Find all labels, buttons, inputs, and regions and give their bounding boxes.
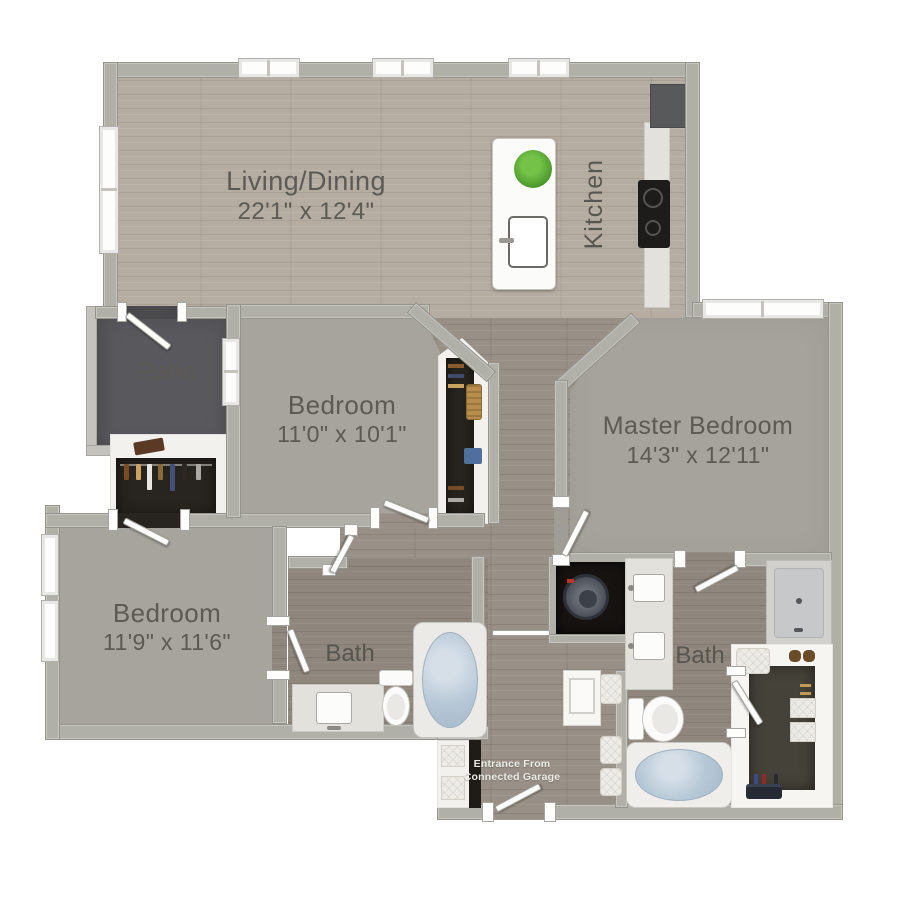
faucet-icon [499, 238, 514, 243]
door-jamb [177, 302, 187, 322]
clothes-icon [448, 498, 464, 502]
bedroom-3-label: Bedroom 11'9" x 11'6" [64, 598, 270, 656]
kitchen-label: Kitchen [572, 142, 616, 266]
burner-icon [643, 188, 663, 208]
storage-basket-icon [600, 768, 622, 796]
bath-1-label: Bath [300, 640, 400, 668]
clothes-icon [196, 464, 201, 480]
window [41, 600, 59, 662]
room-name: Bedroom [240, 390, 444, 421]
wall-bedroom2-left [226, 304, 241, 518]
exterior-mask [338, 740, 438, 822]
clothes-icon [448, 486, 464, 490]
bench-cushion-icon [790, 722, 816, 742]
vanity-sink-icon [633, 574, 665, 602]
bifold-door [492, 630, 550, 636]
bath-2-label: Bath [650, 642, 750, 670]
clothes-icon [448, 364, 464, 368]
entrance-label: Entrance From Connected Garage [445, 758, 579, 784]
washer-control-icon [567, 579, 574, 583]
door-jamb [370, 507, 380, 529]
faucet-icon [327, 726, 341, 730]
wall-right-kitchen [685, 62, 700, 318]
wall-corridor-west [471, 556, 485, 630]
wall-bottom-left [45, 724, 445, 740]
clothes-icon [124, 464, 129, 480]
living-dining-label: Living/Dining 22'1" x 12'4" [176, 166, 436, 226]
floor-plan: Living/Dining 22'1" x 12'4" Kitchen Pati… [0, 0, 900, 900]
cabinet-door-icon [569, 678, 595, 714]
bedroom-2-label: Bedroom 11'0" x 10'1" [240, 390, 444, 448]
room-name: Patio [112, 356, 222, 387]
folded-jeans-icon [746, 784, 782, 799]
toilet-bowl-icon [652, 704, 678, 734]
shower-head-icon [794, 628, 803, 632]
room-dims: 11'0" x 10'1" [240, 421, 444, 448]
room-name: Kitchen [580, 159, 609, 249]
bathtub-water [422, 632, 478, 728]
window [41, 534, 59, 596]
storage-box-icon [464, 448, 482, 464]
door-opening [272, 624, 287, 672]
toilet-bowl-icon [387, 694, 405, 720]
laundry-basket-icon [466, 384, 482, 420]
door-jamb [544, 802, 556, 822]
clothes-icon [448, 384, 464, 388]
shoes-icon [803, 650, 815, 662]
door-opening [682, 552, 736, 567]
faucet-icon [628, 643, 634, 649]
faucet-icon [628, 585, 634, 591]
bedroom-3-closet-floor [116, 458, 216, 516]
bench-cushion-icon [790, 698, 816, 718]
room-name: Bedroom [64, 598, 270, 629]
storage-basket-icon [600, 736, 622, 764]
window-mullion [224, 370, 238, 373]
door-jamb [108, 509, 118, 531]
clothes-icon [147, 464, 152, 490]
room-name: Master Bedroom [570, 412, 826, 442]
patio-label: Patio [112, 356, 222, 387]
bedroom-2-closet-floor [446, 358, 474, 516]
wall-living-bedroom2 [230, 304, 430, 319]
window-mullion [401, 60, 404, 76]
window-mullion [537, 60, 540, 76]
door-jamb [552, 496, 570, 508]
burner-icon [645, 220, 661, 236]
clothes-icon [170, 464, 175, 491]
washer-door-icon [579, 590, 597, 608]
wall-master-left [554, 380, 568, 508]
room-dims: 22'1" x 12'4" [176, 198, 436, 226]
clothes-icon [800, 684, 811, 687]
door-jamb [180, 509, 190, 531]
window-mullion [101, 188, 117, 191]
door-jamb [726, 728, 746, 738]
master-bedroom-label: Master Bedroom 14'3" x 12'11" [570, 412, 826, 469]
clothes-icon [182, 464, 187, 480]
wall-laundry-bottom [548, 634, 632, 644]
clothes-icon [800, 692, 811, 695]
entrance-line2: Connected Garage [445, 771, 579, 784]
wall [488, 362, 500, 524]
island-sink-icon [508, 216, 548, 268]
vanity-sink-icon [316, 692, 352, 724]
bathtub-water [635, 749, 723, 801]
storage-basket-icon [600, 674, 622, 704]
plant-icon [514, 150, 552, 188]
door-jamb [117, 302, 127, 322]
window-mullion [267, 60, 270, 76]
room-dims: 14'3" x 12'11" [570, 442, 826, 469]
shoes-icon [789, 650, 801, 662]
door-jamb [674, 550, 686, 568]
door-jamb [482, 802, 494, 822]
patio-wall-left [86, 306, 97, 456]
door-jamb [266, 670, 290, 680]
room-name: Living/Dining [176, 166, 436, 198]
entrance-line1: Entrance From [445, 758, 579, 771]
window-mullion [761, 301, 764, 317]
clothes-icon [448, 374, 464, 378]
clothes-icon [136, 464, 141, 480]
shower-drain-icon [796, 598, 802, 604]
clothes-icon [158, 464, 163, 480]
toilet-tank-icon [379, 670, 413, 686]
room-dims: 11'9" x 11'6" [64, 629, 270, 656]
